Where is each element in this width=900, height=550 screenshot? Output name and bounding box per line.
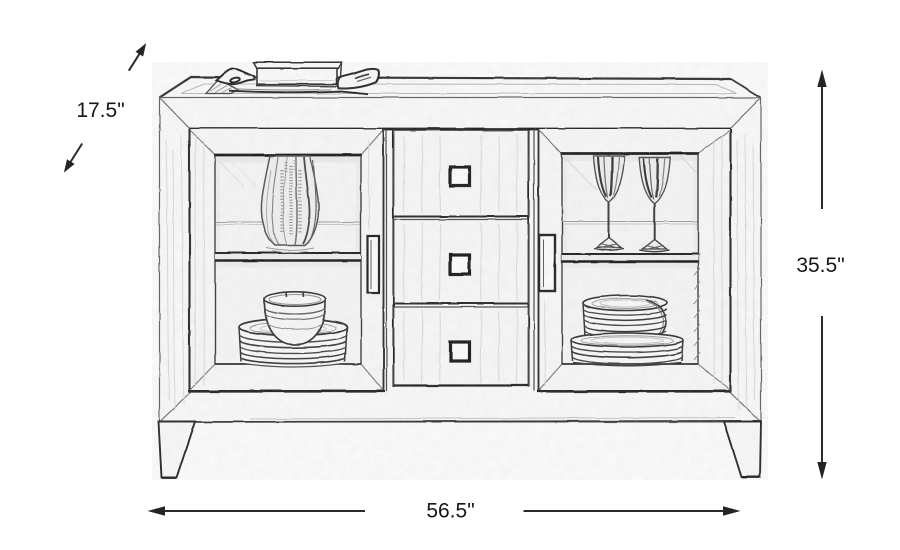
svg-text:56.5": 56.5" [426, 500, 474, 523]
svg-text:35.5": 35.5" [796, 254, 844, 277]
svg-text:17.5": 17.5" [76, 99, 124, 122]
